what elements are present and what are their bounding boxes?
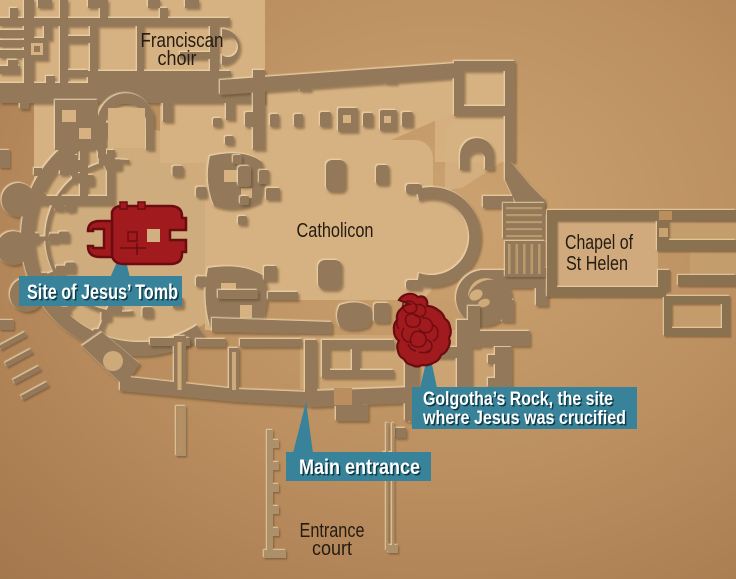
svg-text:Chapel of: Chapel of	[565, 232, 633, 254]
svg-text:where Jesus was crucified: where Jesus was crucified	[422, 408, 626, 429]
svg-text:St Helen: St Helen	[566, 253, 628, 275]
svg-text:choir: choir	[158, 48, 197, 70]
svg-text:Main entrance: Main entrance	[299, 456, 420, 479]
svg-text:Site of Jesus’ Tomb: Site of Jesus’ Tomb	[27, 281, 178, 304]
svg-text:Golgotha’s Rock, the site: Golgotha’s Rock, the site	[423, 389, 613, 410]
svg-text:Catholicon: Catholicon	[297, 220, 374, 242]
svg-text:court: court	[312, 538, 352, 560]
